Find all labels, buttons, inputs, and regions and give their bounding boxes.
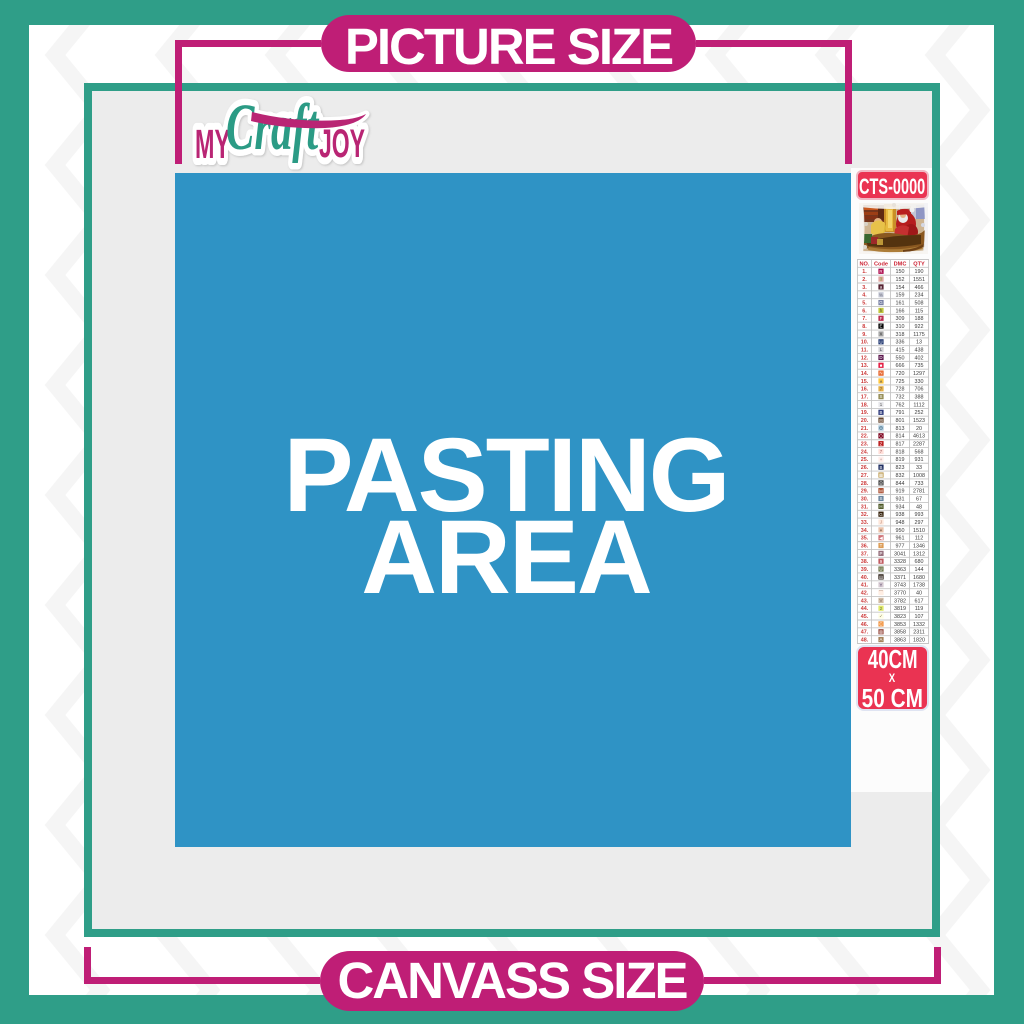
svg-text:33.: 33. xyxy=(861,520,869,526)
svg-text:12.: 12. xyxy=(861,355,869,361)
svg-text:844: 844 xyxy=(896,481,905,487)
svg-text:30.: 30. xyxy=(861,496,869,502)
svg-text:3363: 3363 xyxy=(894,567,906,573)
svg-text:33: 33 xyxy=(916,465,922,471)
svg-text:297: 297 xyxy=(915,520,924,526)
svg-text:Y: Y xyxy=(880,582,883,587)
svg-text:27.: 27. xyxy=(861,473,869,479)
svg-text:U: U xyxy=(879,567,882,572)
svg-text:1346: 1346 xyxy=(913,543,925,549)
svg-text:Craft: Craft xyxy=(226,95,319,164)
svg-text:⊟: ⊟ xyxy=(879,418,883,423)
svg-text:M: M xyxy=(879,488,883,493)
svg-text:8.: 8. xyxy=(862,324,867,330)
svg-text:21.: 21. xyxy=(861,426,869,432)
svg-text:B: B xyxy=(880,465,883,470)
svg-text:G: G xyxy=(879,300,883,305)
svg-text:1175: 1175 xyxy=(913,332,925,338)
svg-text:41.: 41. xyxy=(861,583,869,589)
svg-text:23.: 23. xyxy=(861,442,869,448)
svg-text:1551: 1551 xyxy=(913,277,925,283)
svg-text:MY: MY xyxy=(195,122,230,167)
svg-text:666: 666 xyxy=(896,363,905,369)
svg-text:823: 823 xyxy=(896,465,905,471)
svg-text:1680: 1680 xyxy=(913,575,925,581)
svg-text:801: 801 xyxy=(896,418,905,424)
svg-text:39.: 39. xyxy=(861,567,869,573)
svg-text:993: 993 xyxy=(915,512,924,518)
svg-text:310: 310 xyxy=(896,324,905,330)
svg-text:1332: 1332 xyxy=(913,622,925,628)
svg-text:144: 144 xyxy=(915,567,924,573)
svg-text:⊠: ⊠ xyxy=(879,629,883,634)
svg-text:36.: 36. xyxy=(861,543,869,549)
svg-text:2311: 2311 xyxy=(913,630,925,636)
svg-text:▲: ▲ xyxy=(879,379,883,384)
svg-text:D: D xyxy=(879,355,882,360)
svg-text:⌒: ⌒ xyxy=(879,590,884,595)
svg-text:1112: 1112 xyxy=(913,402,924,408)
svg-text:O: O xyxy=(879,433,883,438)
svg-text:34.: 34. xyxy=(861,528,869,534)
svg-text:3858: 3858 xyxy=(894,630,906,636)
svg-text:791: 791 xyxy=(896,410,905,416)
svg-text:18.: 18. xyxy=(861,402,869,408)
svg-text:188: 188 xyxy=(915,316,924,322)
svg-text:✓: ✓ xyxy=(879,614,883,619)
svg-text:3819: 3819 xyxy=(894,606,906,612)
svg-text:+: + xyxy=(880,457,883,462)
svg-text:154: 154 xyxy=(896,285,905,291)
svg-text:762: 762 xyxy=(896,402,905,408)
svg-text:44.: 44. xyxy=(861,606,869,612)
svg-text:961: 961 xyxy=(896,536,905,542)
svg-text:150: 150 xyxy=(896,269,905,275)
svg-text:48: 48 xyxy=(916,504,922,510)
svg-text:H: H xyxy=(879,504,882,509)
svg-text:720: 720 xyxy=(896,371,905,377)
svg-text:7.: 7. xyxy=(862,316,867,322)
svg-text:817: 817 xyxy=(896,442,905,448)
svg-text:%: % xyxy=(879,292,883,297)
svg-text:▤: ▤ xyxy=(879,574,883,579)
svg-text:20.: 20. xyxy=(861,418,869,424)
svg-text:Θ: Θ xyxy=(879,426,883,431)
svg-text:15.: 15. xyxy=(861,379,869,385)
svg-text:309: 309 xyxy=(896,316,905,322)
svg-text:318: 318 xyxy=(896,332,905,338)
svg-text:107: 107 xyxy=(915,614,924,620)
svg-text:45.: 45. xyxy=(861,614,869,620)
svg-text:G: G xyxy=(879,512,883,517)
svg-text:832: 832 xyxy=(896,473,905,479)
svg-text:3041: 3041 xyxy=(894,551,906,557)
svg-text:1297: 1297 xyxy=(913,371,925,377)
svg-text:S: S xyxy=(880,394,883,399)
svg-text:32.: 32. xyxy=(861,512,869,518)
svg-text:X: X xyxy=(880,332,883,337)
svg-text:■: ■ xyxy=(880,363,883,368)
svg-text:388: 388 xyxy=(915,395,924,401)
svg-text:26.: 26. xyxy=(861,465,869,471)
svg-text:1738: 1738 xyxy=(913,583,925,589)
svg-text:38.: 38. xyxy=(861,559,869,565)
svg-text:Z: Z xyxy=(880,441,883,446)
svg-text:13.: 13. xyxy=(861,363,869,369)
svg-text:42.: 42. xyxy=(861,590,869,596)
svg-text:112: 112 xyxy=(915,536,924,542)
svg-text:3371: 3371 xyxy=(894,575,906,581)
svg-text:119: 119 xyxy=(915,606,924,612)
svg-text:J: J xyxy=(880,520,882,525)
svg-text:3770: 3770 xyxy=(894,590,906,596)
svg-text:3328: 3328 xyxy=(894,559,906,565)
svg-text:2287: 2287 xyxy=(913,442,925,448)
svg-text:115: 115 xyxy=(915,308,924,314)
svg-text:234: 234 xyxy=(915,293,924,299)
svg-text:922: 922 xyxy=(915,324,924,330)
svg-text:43.: 43. xyxy=(861,598,869,604)
svg-text:336: 336 xyxy=(896,340,905,346)
svg-text:S: S xyxy=(880,496,883,501)
svg-text:6.: 6. xyxy=(862,308,867,314)
svg-text:11.: 11. xyxy=(861,348,869,354)
svg-text:2781: 2781 xyxy=(913,489,925,495)
svg-text:E: E xyxy=(880,324,883,329)
svg-text:814: 814 xyxy=(896,434,905,440)
svg-text:40.: 40. xyxy=(861,575,869,581)
svg-text:706: 706 xyxy=(915,387,924,393)
svg-text:●: ● xyxy=(880,527,883,532)
svg-text:DMC: DMC xyxy=(894,261,907,267)
svg-text:67: 67 xyxy=(916,496,922,502)
svg-text:35.: 35. xyxy=(861,536,869,542)
svg-text:Code: Code xyxy=(874,261,888,267)
svg-text:977: 977 xyxy=(896,543,905,549)
svg-text:13: 13 xyxy=(916,340,922,346)
svg-text:V: V xyxy=(880,598,883,603)
svg-text:1312: 1312 xyxy=(913,551,925,557)
svg-text:28.: 28. xyxy=(861,481,869,487)
svg-text:735: 735 xyxy=(915,363,924,369)
svg-text:29.: 29. xyxy=(861,489,869,495)
svg-text:1523: 1523 xyxy=(913,418,925,424)
svg-text:3782: 3782 xyxy=(894,598,906,604)
svg-text:568: 568 xyxy=(915,449,924,455)
svg-text:1.: 1. xyxy=(862,269,867,275)
svg-text:190: 190 xyxy=(915,269,924,275)
svg-text:P: P xyxy=(880,551,883,556)
svg-text:950: 950 xyxy=(896,528,905,534)
svg-text:22.: 22. xyxy=(861,434,869,440)
svg-text:813: 813 xyxy=(896,426,905,432)
svg-text:20: 20 xyxy=(916,426,922,432)
svg-text:F: F xyxy=(880,316,883,321)
svg-text:931: 931 xyxy=(915,457,924,463)
svg-text:R: R xyxy=(879,269,882,274)
svg-text:N: N xyxy=(879,371,882,376)
svg-text:931: 931 xyxy=(896,496,905,502)
svg-text:438: 438 xyxy=(915,348,924,354)
svg-text:25.: 25. xyxy=(861,457,869,463)
svg-text:415: 415 xyxy=(896,348,905,354)
svg-text:466: 466 xyxy=(915,285,924,291)
svg-text:4613: 4613 xyxy=(913,434,925,440)
svg-text:NO.: NO. xyxy=(860,261,870,267)
svg-text:▦: ▦ xyxy=(879,473,883,478)
svg-text:617: 617 xyxy=(915,598,924,604)
svg-text:402: 402 xyxy=(915,355,924,361)
svg-text:3743: 3743 xyxy=(894,583,906,589)
svg-text:152: 152 xyxy=(896,277,905,283)
svg-text:3.: 3. xyxy=(862,285,867,291)
svg-text:U: U xyxy=(879,339,882,344)
svg-text:14.: 14. xyxy=(861,371,869,377)
svg-text:31.: 31. xyxy=(861,504,869,510)
svg-text:T: T xyxy=(880,543,883,548)
svg-text:948: 948 xyxy=(896,520,905,526)
svg-text:733: 733 xyxy=(915,481,924,487)
svg-text:938: 938 xyxy=(896,512,905,518)
svg-text:24.: 24. xyxy=(861,449,869,455)
svg-text:37.: 37. xyxy=(861,551,869,557)
svg-text:2.: 2. xyxy=(862,277,867,283)
svg-text:3853: 3853 xyxy=(894,622,906,628)
svg-text:47.: 47. xyxy=(861,630,869,636)
svg-text:A: A xyxy=(880,637,883,642)
svg-text:919: 919 xyxy=(896,489,905,495)
svg-text:40: 40 xyxy=(916,590,922,596)
svg-text:732: 732 xyxy=(896,395,905,401)
svg-text:QTY: QTY xyxy=(913,261,925,267)
svg-text:1510: 1510 xyxy=(913,528,925,534)
svg-text:330: 330 xyxy=(915,379,924,385)
svg-text:819: 819 xyxy=(896,457,905,463)
svg-text:5.: 5. xyxy=(862,301,867,307)
svg-text:17.: 17. xyxy=(861,395,869,401)
svg-text:934: 934 xyxy=(896,504,905,510)
svg-text:166: 166 xyxy=(896,308,905,314)
svg-text:725: 725 xyxy=(896,379,905,385)
svg-text:1008: 1008 xyxy=(913,473,925,479)
svg-text:680: 680 xyxy=(915,559,924,565)
svg-text:10.: 10. xyxy=(861,340,869,346)
svg-text:252: 252 xyxy=(915,410,924,416)
svg-text:508: 508 xyxy=(915,301,924,307)
svg-text:16.: 16. xyxy=(861,387,869,393)
svg-text:4.: 4. xyxy=(862,293,867,299)
svg-text:46.: 46. xyxy=(861,622,869,628)
svg-text:161: 161 xyxy=(896,301,905,307)
svg-text:C: C xyxy=(879,622,882,627)
svg-text:728: 728 xyxy=(896,387,905,393)
svg-text:159: 159 xyxy=(896,293,905,299)
svg-text:B: B xyxy=(880,410,883,415)
svg-text:550: 550 xyxy=(896,355,905,361)
svg-text:818: 818 xyxy=(896,449,905,455)
svg-text:19.: 19. xyxy=(861,410,869,416)
svg-text:3823: 3823 xyxy=(894,614,906,620)
svg-text:9.: 9. xyxy=(862,332,867,338)
